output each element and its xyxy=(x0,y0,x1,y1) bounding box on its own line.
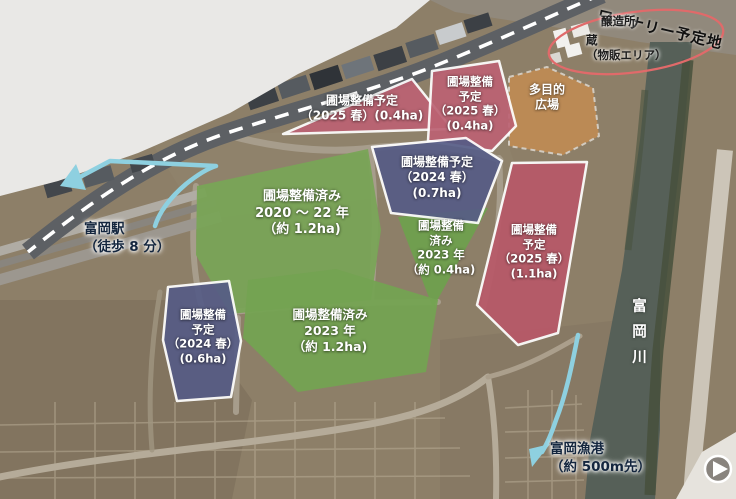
next-arrow-button[interactable] xyxy=(705,456,731,482)
aerial-photo xyxy=(0,0,736,499)
field-polygon-purple-bottom-left xyxy=(163,281,241,401)
field-polygon-purple-mid xyxy=(372,138,502,223)
aerial-map: ワイナリー予定地 醸造所 蔵 （物販エリア） 多目的 広場 圃場整備予定 （20… xyxy=(0,0,736,499)
field-polygon-pink-top-right xyxy=(428,61,516,151)
